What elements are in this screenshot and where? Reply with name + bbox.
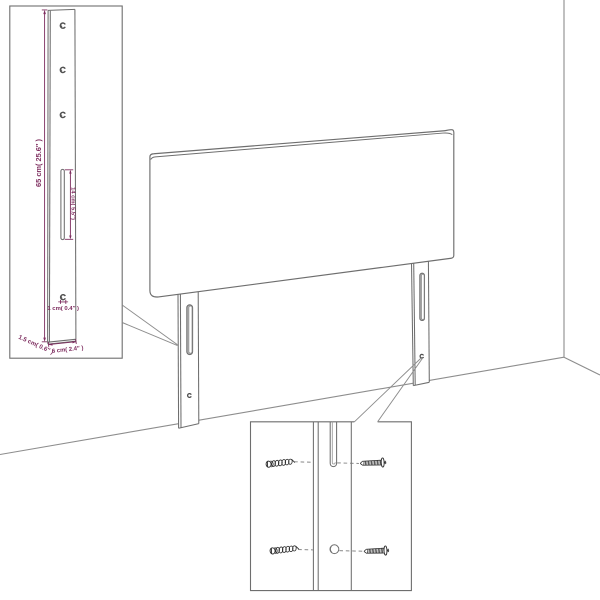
- svg-text:65 cm( 25.6″ ): 65 cm( 25.6″ ): [34, 139, 43, 187]
- svg-text:14 cm( 5.5″): 14 cm( 5.5″): [69, 187, 75, 220]
- svg-text:1 cm( 0.4″ ): 1 cm( 0.4″ ): [47, 306, 79, 312]
